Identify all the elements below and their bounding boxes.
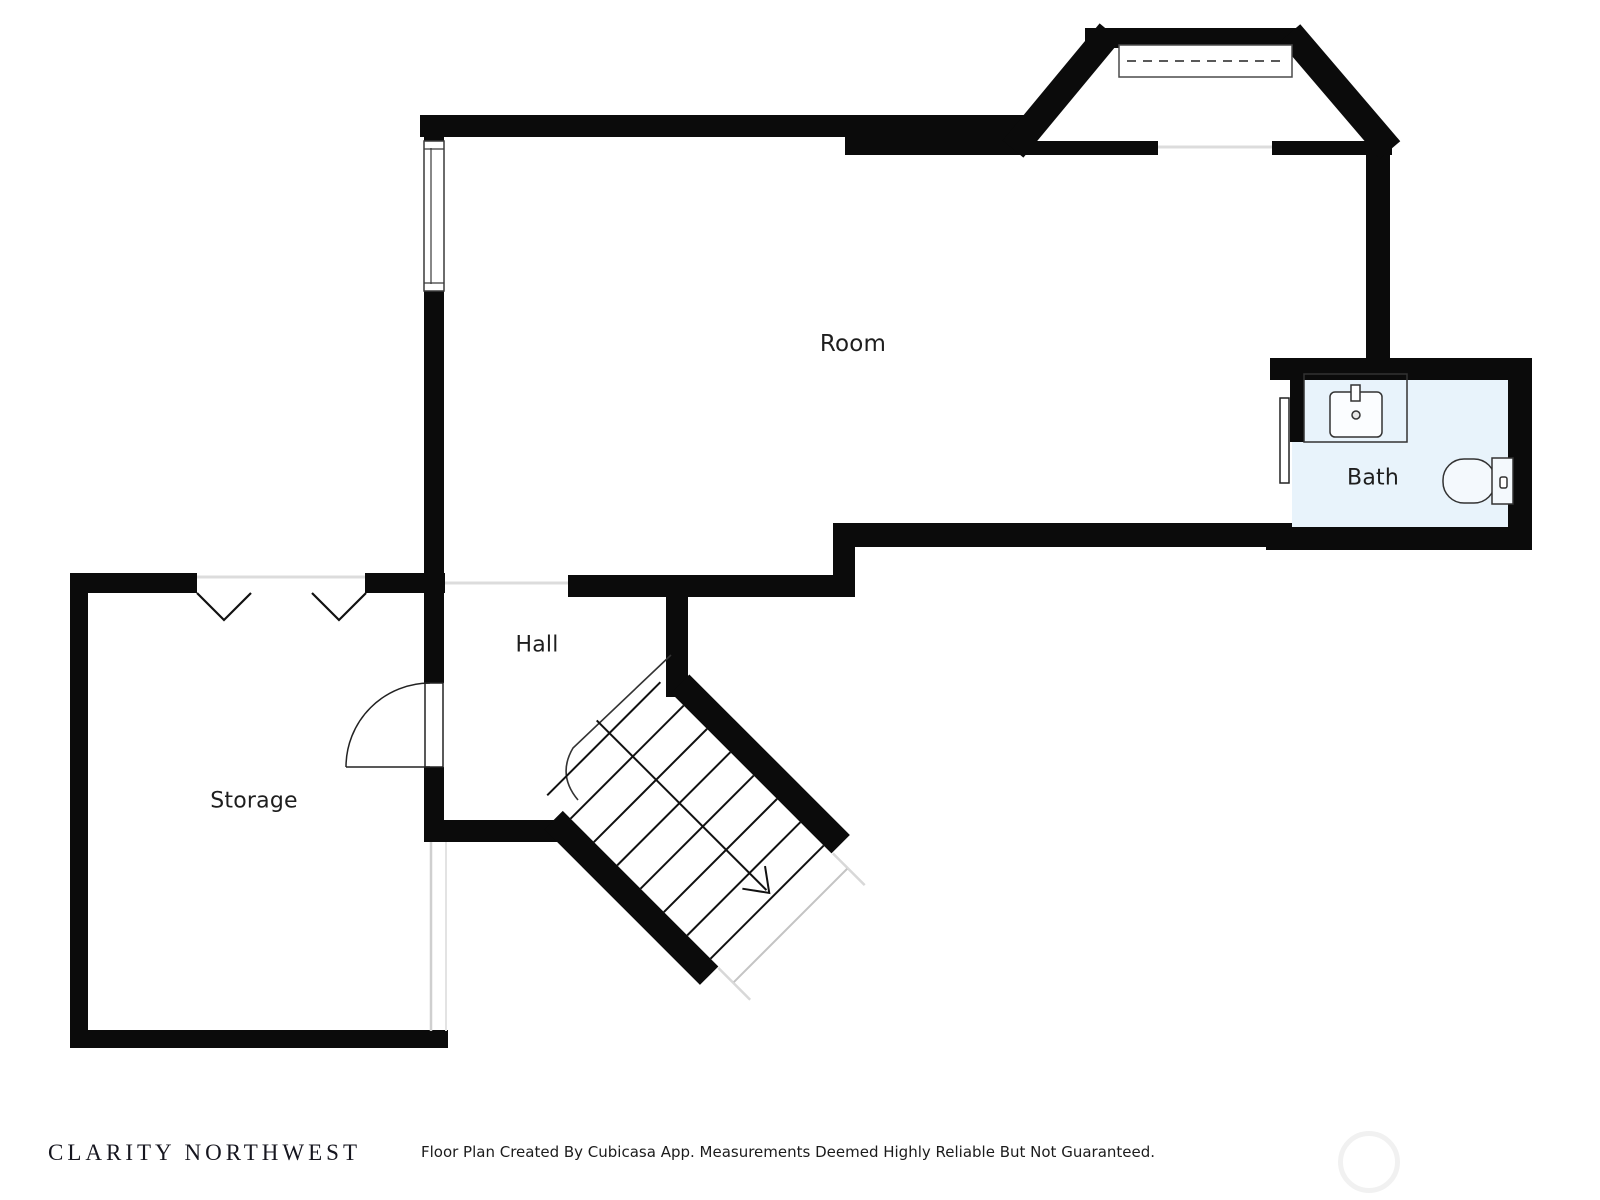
stair-tread bbox=[687, 822, 800, 935]
floor-plan-page: Room Bath Hall Storage CLARITY NORTHWEST… bbox=[0, 0, 1600, 1200]
stair-tread bbox=[711, 846, 824, 959]
bay-left-wall bbox=[1013, 32, 1110, 149]
stair-tread bbox=[547, 682, 660, 795]
stair-tread bbox=[617, 752, 730, 865]
room-bottom-wall bbox=[833, 523, 1292, 547]
stair-tread bbox=[571, 706, 684, 819]
brand-logo-text: CLARITY NORTHWEST bbox=[48, 1140, 361, 1166]
storage-door-swing-arc bbox=[346, 683, 430, 767]
storage-gray-partition bbox=[431, 842, 446, 1031]
bay-sill-wall-right bbox=[1272, 141, 1392, 155]
hall-top-wall bbox=[568, 575, 855, 597]
bay-right-wall bbox=[1290, 33, 1390, 150]
stair-cutoff-fade bbox=[718, 853, 864, 999]
bath-right-wall bbox=[1508, 358, 1532, 550]
hall-label: Hall bbox=[515, 633, 558, 658]
stair-upper-wall bbox=[680, 684, 841, 845]
bath-label: Bath bbox=[1347, 466, 1399, 491]
room-top-wall-thick-segment bbox=[845, 115, 1025, 155]
storage-door bbox=[346, 683, 443, 767]
casement-window-icon bbox=[312, 593, 366, 620]
room-window bbox=[424, 141, 444, 291]
bay-closet bbox=[1119, 45, 1292, 77]
stair-treads bbox=[547, 682, 823, 958]
storage-door-leaf bbox=[425, 683, 443, 767]
disclaimer-text: Floor Plan Created By Cubicasa App. Meas… bbox=[421, 1143, 1155, 1161]
staircase bbox=[525, 660, 873, 1008]
room-right-wall bbox=[1366, 140, 1390, 372]
stair-tread bbox=[641, 776, 754, 889]
sink-drain bbox=[1352, 411, 1360, 419]
bath-door-leaf bbox=[1280, 398, 1289, 483]
watermark-circle bbox=[1338, 1131, 1400, 1193]
sink-faucet bbox=[1351, 385, 1360, 401]
casement-window-icon bbox=[197, 593, 251, 620]
stair-tread bbox=[664, 799, 777, 912]
hall-bottom-wall bbox=[424, 820, 567, 842]
bath-floor bbox=[1292, 378, 1510, 528]
bath-bottom-wall bbox=[1266, 527, 1532, 550]
bay-sill-wall-left bbox=[1022, 141, 1158, 155]
toilet-bowl bbox=[1443, 459, 1495, 503]
toilet-flush-button bbox=[1500, 477, 1507, 488]
stair-fade-edge-lower bbox=[718, 968, 750, 1000]
storage-left-wall bbox=[70, 573, 88, 1048]
hall-left-wall-below-door bbox=[424, 767, 444, 842]
room-left-wall bbox=[424, 291, 444, 683]
window-frame bbox=[424, 141, 444, 291]
stair-tread bbox=[594, 729, 707, 842]
walls bbox=[70, 28, 1532, 1048]
storage-top-wall-right bbox=[365, 573, 445, 593]
storage-label: Storage bbox=[210, 789, 297, 814]
bath-top-wall bbox=[1270, 358, 1532, 380]
stair-fade-edge-upper bbox=[833, 853, 865, 885]
bath-left-wall bbox=[1290, 372, 1304, 442]
stair-fade-tread bbox=[734, 869, 847, 982]
storage-top-wall-left bbox=[70, 573, 197, 593]
room-label: Room bbox=[820, 331, 886, 357]
floor-plan-drawing bbox=[0, 0, 1600, 1200]
storage-bottom-wall bbox=[70, 1030, 448, 1048]
room-left-wall-above-window bbox=[424, 115, 444, 141]
opening-lines bbox=[197, 147, 1272, 583]
storage-casement-windows bbox=[197, 593, 366, 620]
